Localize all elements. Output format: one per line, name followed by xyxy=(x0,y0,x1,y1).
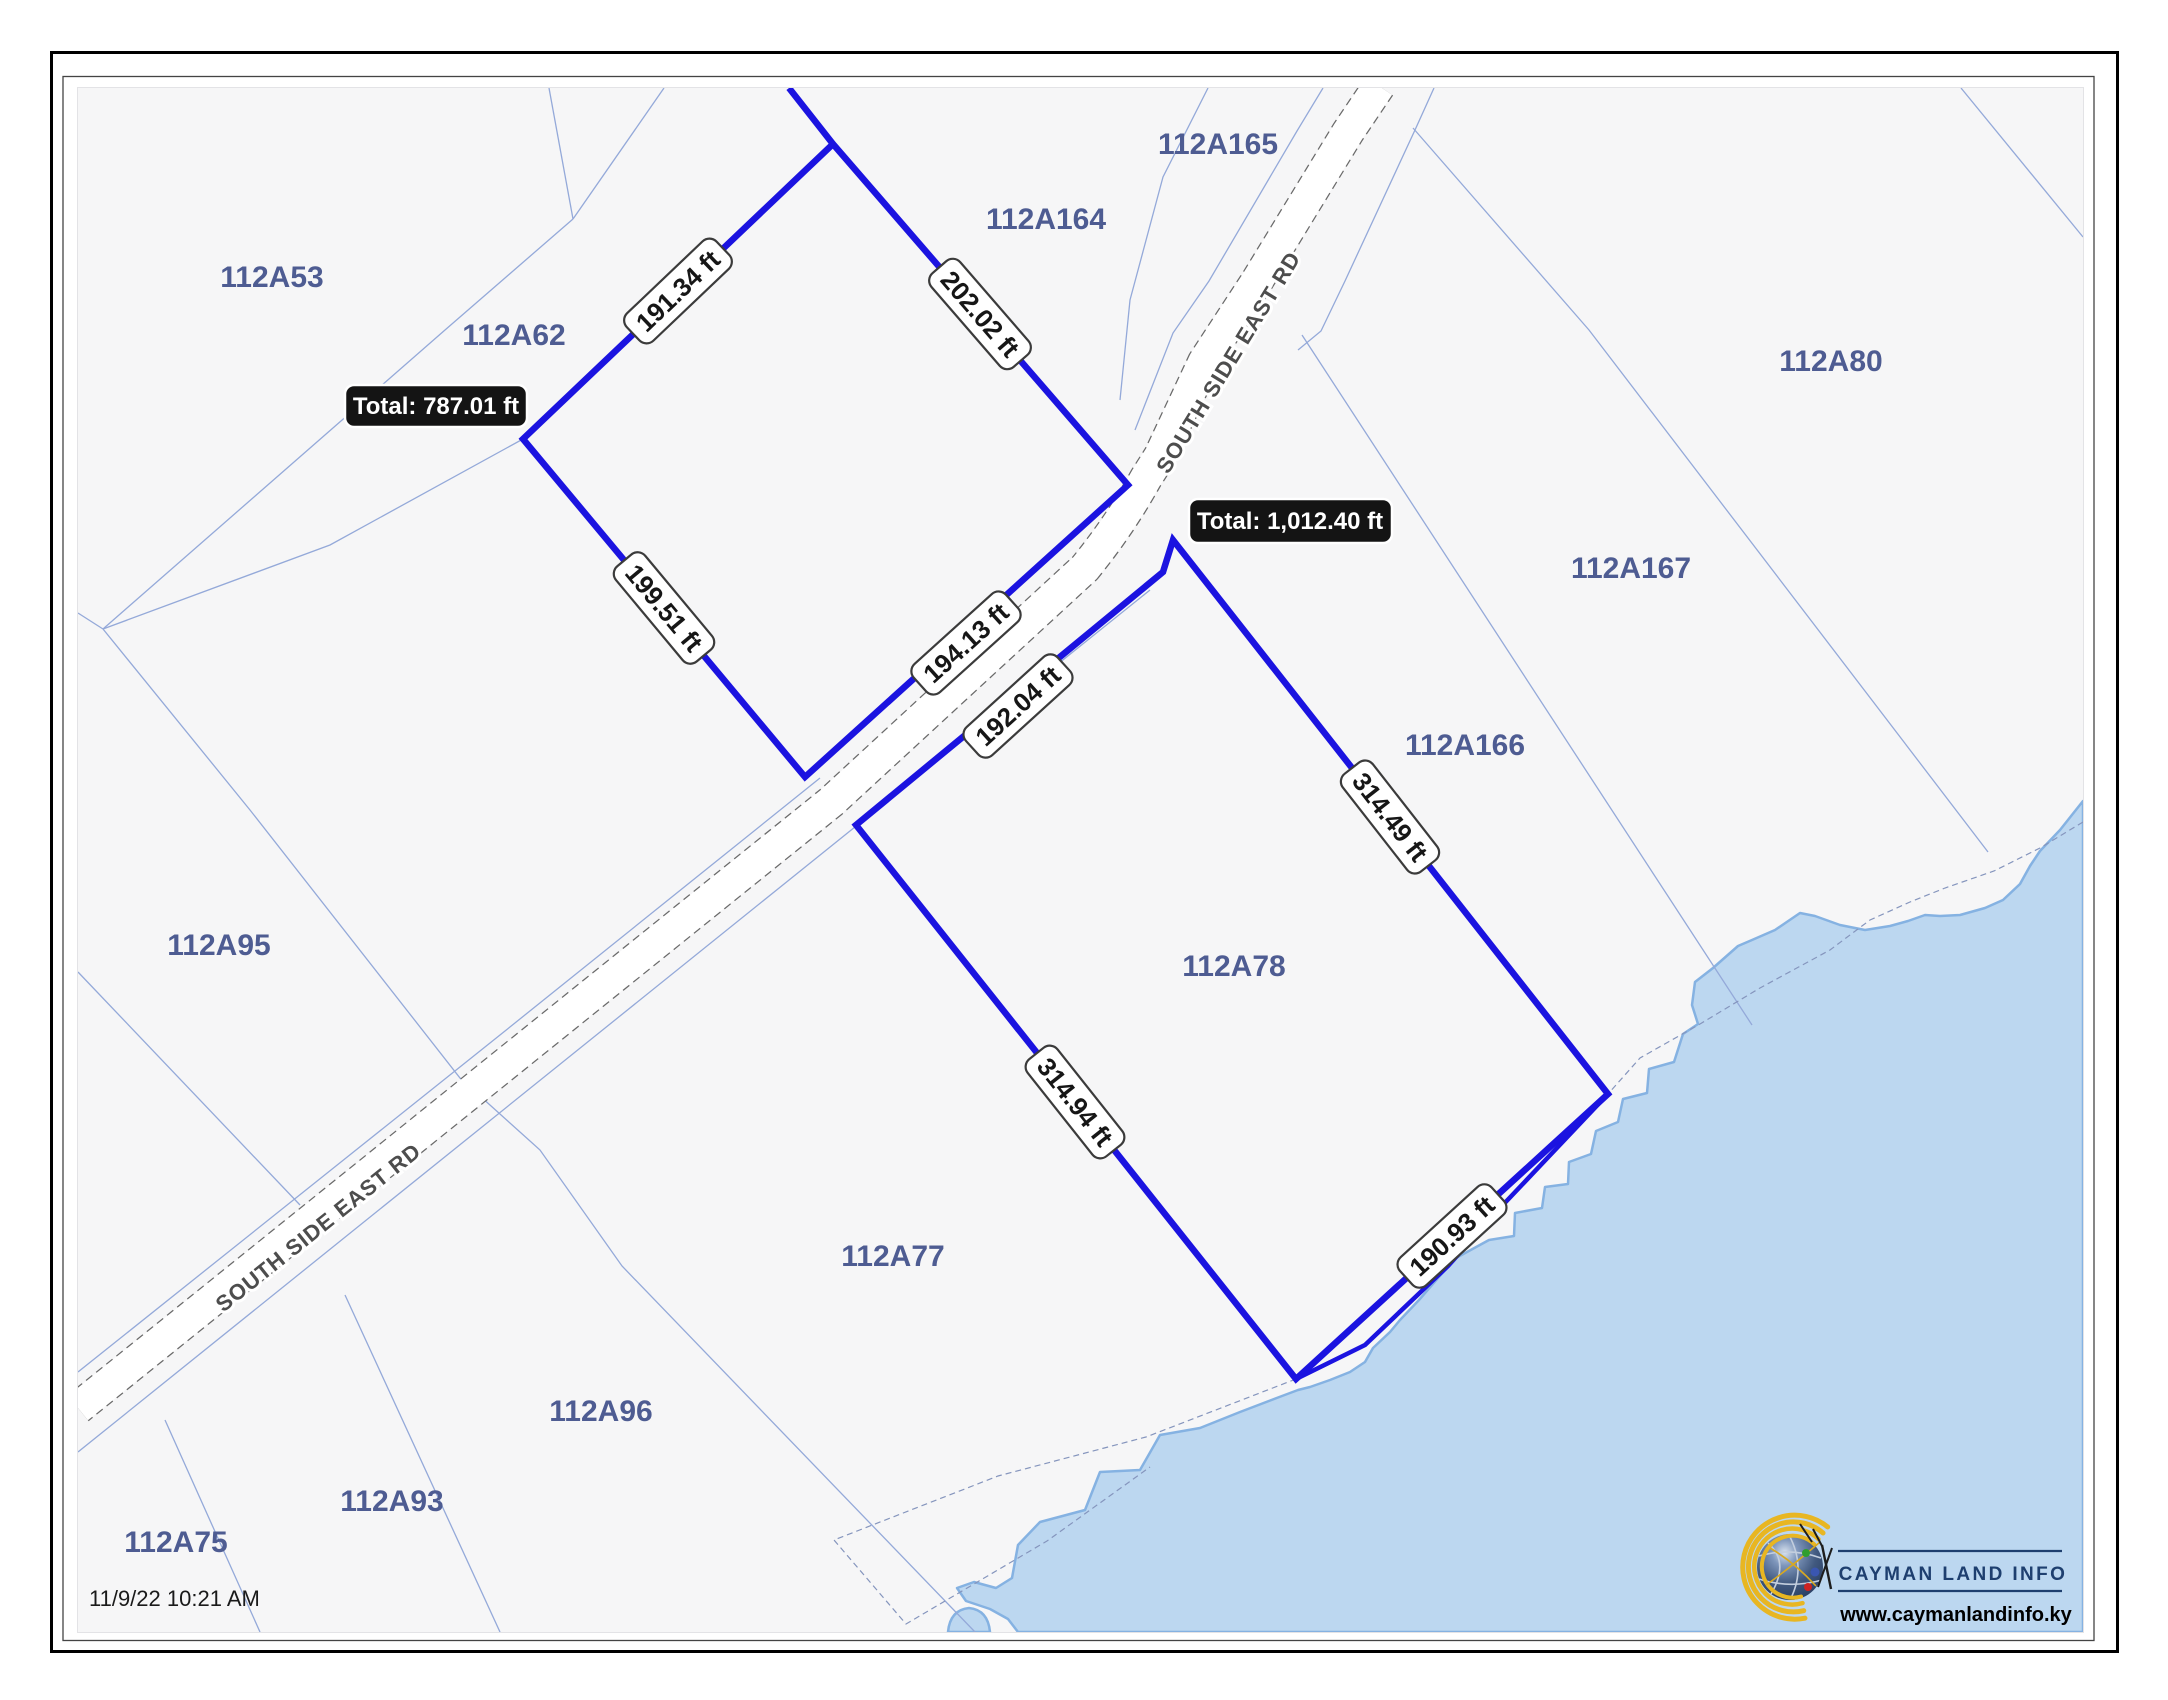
svg-text:112A164: 112A164 xyxy=(986,203,1106,236)
svg-text:112A95: 112A95 xyxy=(167,929,270,962)
svg-text:www.caymanlandinfo.ky: www.caymanlandinfo.ky xyxy=(1839,1604,2072,1626)
svg-text:112A80: 112A80 xyxy=(1779,345,1882,378)
svg-text:112A165: 112A165 xyxy=(1158,128,1278,161)
svg-text:112A77: 112A77 xyxy=(841,1240,944,1273)
svg-text:112A93: 112A93 xyxy=(340,1485,443,1518)
svg-text:112A53: 112A53 xyxy=(220,261,323,294)
svg-text:11/9/22 10:21 AM: 11/9/22 10:21 AM xyxy=(89,1586,260,1611)
svg-text:112A78: 112A78 xyxy=(1182,950,1285,983)
svg-text:112A75: 112A75 xyxy=(124,1526,227,1559)
svg-text:112A62: 112A62 xyxy=(462,319,565,352)
svg-text:Total: 1,012.40 ft: Total: 1,012.40 ft xyxy=(1197,508,1383,535)
svg-text:112A166: 112A166 xyxy=(1405,729,1525,762)
svg-text:112A96: 112A96 xyxy=(549,1395,652,1428)
svg-text:112A167: 112A167 xyxy=(1571,552,1691,585)
svg-text:Total: 787.01 ft: Total: 787.01 ft xyxy=(353,393,519,420)
svg-text:CAYMAN LAND INFO: CAYMAN LAND INFO xyxy=(1839,1564,2068,1585)
